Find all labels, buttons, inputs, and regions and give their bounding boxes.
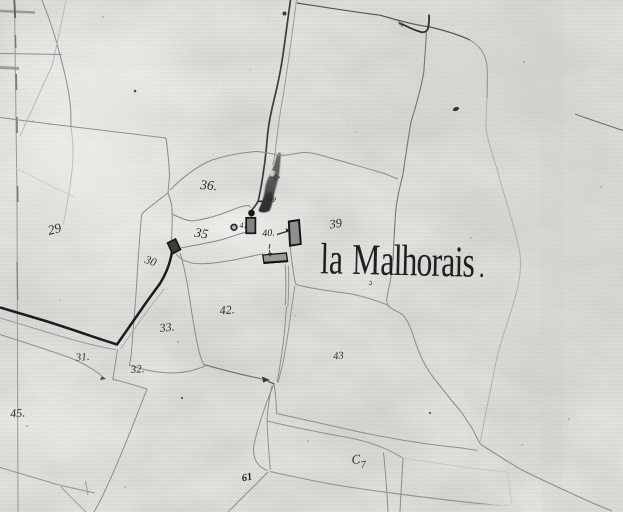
svg-text:61: 61	[241, 471, 254, 484]
svg-text:41: 41	[240, 221, 248, 230]
svg-text:33.: 33.	[158, 319, 175, 335]
svg-text:32.: 32.	[129, 363, 145, 376]
svg-text:36.: 36.	[199, 177, 218, 193]
svg-text:45.: 45.	[10, 405, 26, 420]
svg-text:43: 43	[333, 350, 345, 362]
svg-text:42.: 42.	[219, 302, 235, 317]
svg-text:39: 39	[327, 216, 343, 232]
svg-text:40.: 40.	[262, 228, 275, 240]
svg-text:la Malhorais.: la Malhorais.	[320, 235, 486, 287]
svg-text:35: 35	[192, 225, 209, 242]
svg-text:31.: 31.	[74, 351, 90, 364]
